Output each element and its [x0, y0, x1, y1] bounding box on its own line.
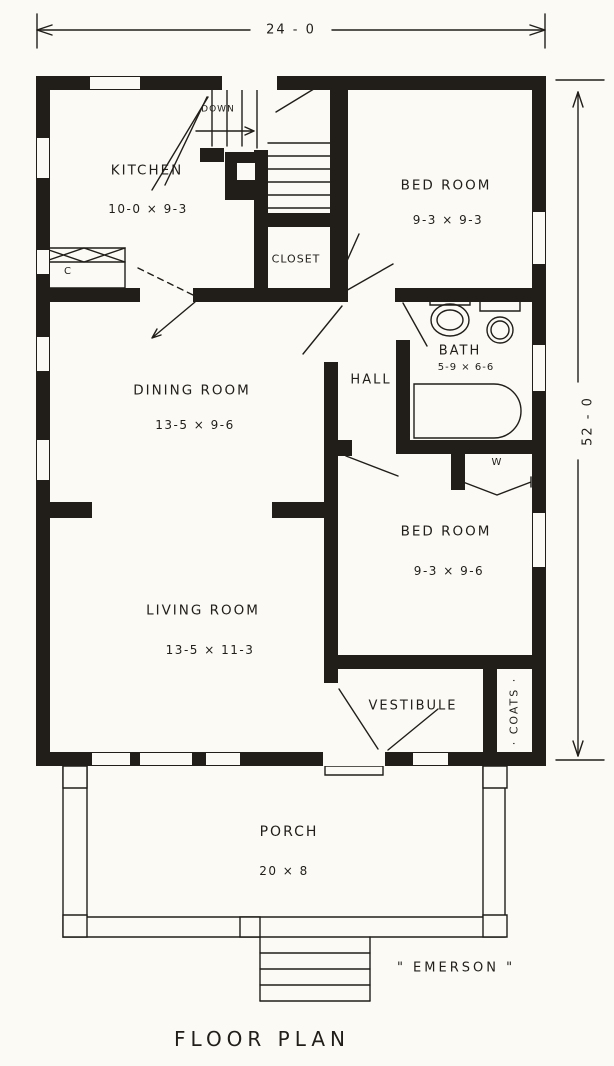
room-size-bedroom1: 9-3 × 9-3: [413, 214, 483, 226]
room-label-hall: HALL: [350, 374, 391, 387]
linework-layer: [0, 0, 614, 1066]
wall-living-stub-right: [272, 502, 324, 518]
kitchen-case-label: C: [64, 267, 72, 277]
wall-stair-kitchen-stub: [200, 148, 224, 162]
room-label-vestibule: VESTIBULE: [368, 700, 457, 713]
room-label-dining: DINING ROOM: [133, 384, 251, 398]
window-dining-left-2: [36, 440, 50, 480]
window-kitchen-top: [90, 76, 140, 90]
main-stairs: [268, 143, 330, 208]
wall-living-stub-left: [50, 502, 92, 518]
overall-height-dimension: 52 - 0: [582, 396, 595, 446]
wall-stair-closet: [268, 213, 330, 227]
stairs-down-label: DOWN: [201, 106, 235, 115]
wall-bedroom2-bottom: [338, 655, 546, 669]
room-label-closet: CLOSET: [272, 254, 321, 265]
room-size-dining: 13-5 × 9-6: [155, 419, 235, 431]
bathtub: [414, 384, 521, 438]
wall-wardrobe-left: [451, 454, 465, 490]
entrance-steps: [260, 937, 370, 1001]
window-bedroom2-right: [532, 513, 546, 567]
room-label-coats: · COATS ·: [509, 677, 520, 746]
wall-kitchen-dining-left: [36, 288, 140, 302]
wall-kitchen-dining-right: [193, 288, 343, 302]
wall-hall-stub: [338, 440, 352, 456]
window-vestibule-front: [413, 752, 448, 766]
wall-bath-bottom: [396, 440, 546, 454]
overall-width-dimension: 24 - 0: [266, 24, 316, 37]
room-label-bath: BATH: [439, 345, 482, 358]
wardrobe-label: W: [492, 458, 503, 468]
room-size-bath: 5-9 × 6-6: [438, 363, 494, 373]
front-door-threshold: [325, 766, 383, 775]
room-size-bedroom2: 9-3 × 9-6: [414, 565, 484, 577]
window-dining-left-1: [36, 337, 50, 371]
chimney-flue: [237, 163, 255, 180]
window-living-front-1: [92, 752, 130, 766]
plan-name: " EMERSON ": [397, 962, 515, 975]
window-sink-left: [36, 250, 50, 274]
drawing-caption: FLOOR PLAN: [174, 1029, 350, 1049]
wall-coats-left: [483, 669, 497, 752]
room-label-porch: PORCH: [260, 825, 319, 839]
window-kitchen-left: [36, 138, 50, 178]
room-label-living: LIVING ROOM: [146, 604, 260, 618]
window-bath-right: [532, 345, 546, 391]
window-living-front-2: [140, 752, 192, 766]
wall-bath-left: [396, 340, 410, 442]
room-size-kitchen: 10-0 × 9-3: [108, 203, 188, 215]
floor-plan-drawing: 24 - 0 52 - 0 DOWN KITCHEN 10-0 × 9-3 BE…: [0, 0, 614, 1066]
back-door-opening: [222, 76, 277, 90]
room-size-porch: 20 × 8: [259, 865, 309, 877]
room-label-bedroom2: BED ROOM: [401, 525, 492, 539]
wall-bedroom1-bottom: [395, 288, 546, 302]
room-label-kitchen: KITCHEN: [111, 164, 184, 178]
kitchen-counter: [43, 248, 125, 288]
porch-railing: [63, 766, 507, 937]
room-label-bedroom1: BED ROOM: [401, 179, 492, 193]
room-size-living: 13-5 × 11-3: [166, 644, 255, 656]
window-living-front-3: [206, 752, 240, 766]
window-bedroom1-right: [532, 212, 546, 264]
wall-stair-bedroom1: [330, 90, 348, 302]
front-door-opening: [323, 752, 385, 766]
sink: [480, 300, 520, 343]
wall-outer-left: [36, 76, 50, 766]
wall-center: [324, 362, 338, 683]
